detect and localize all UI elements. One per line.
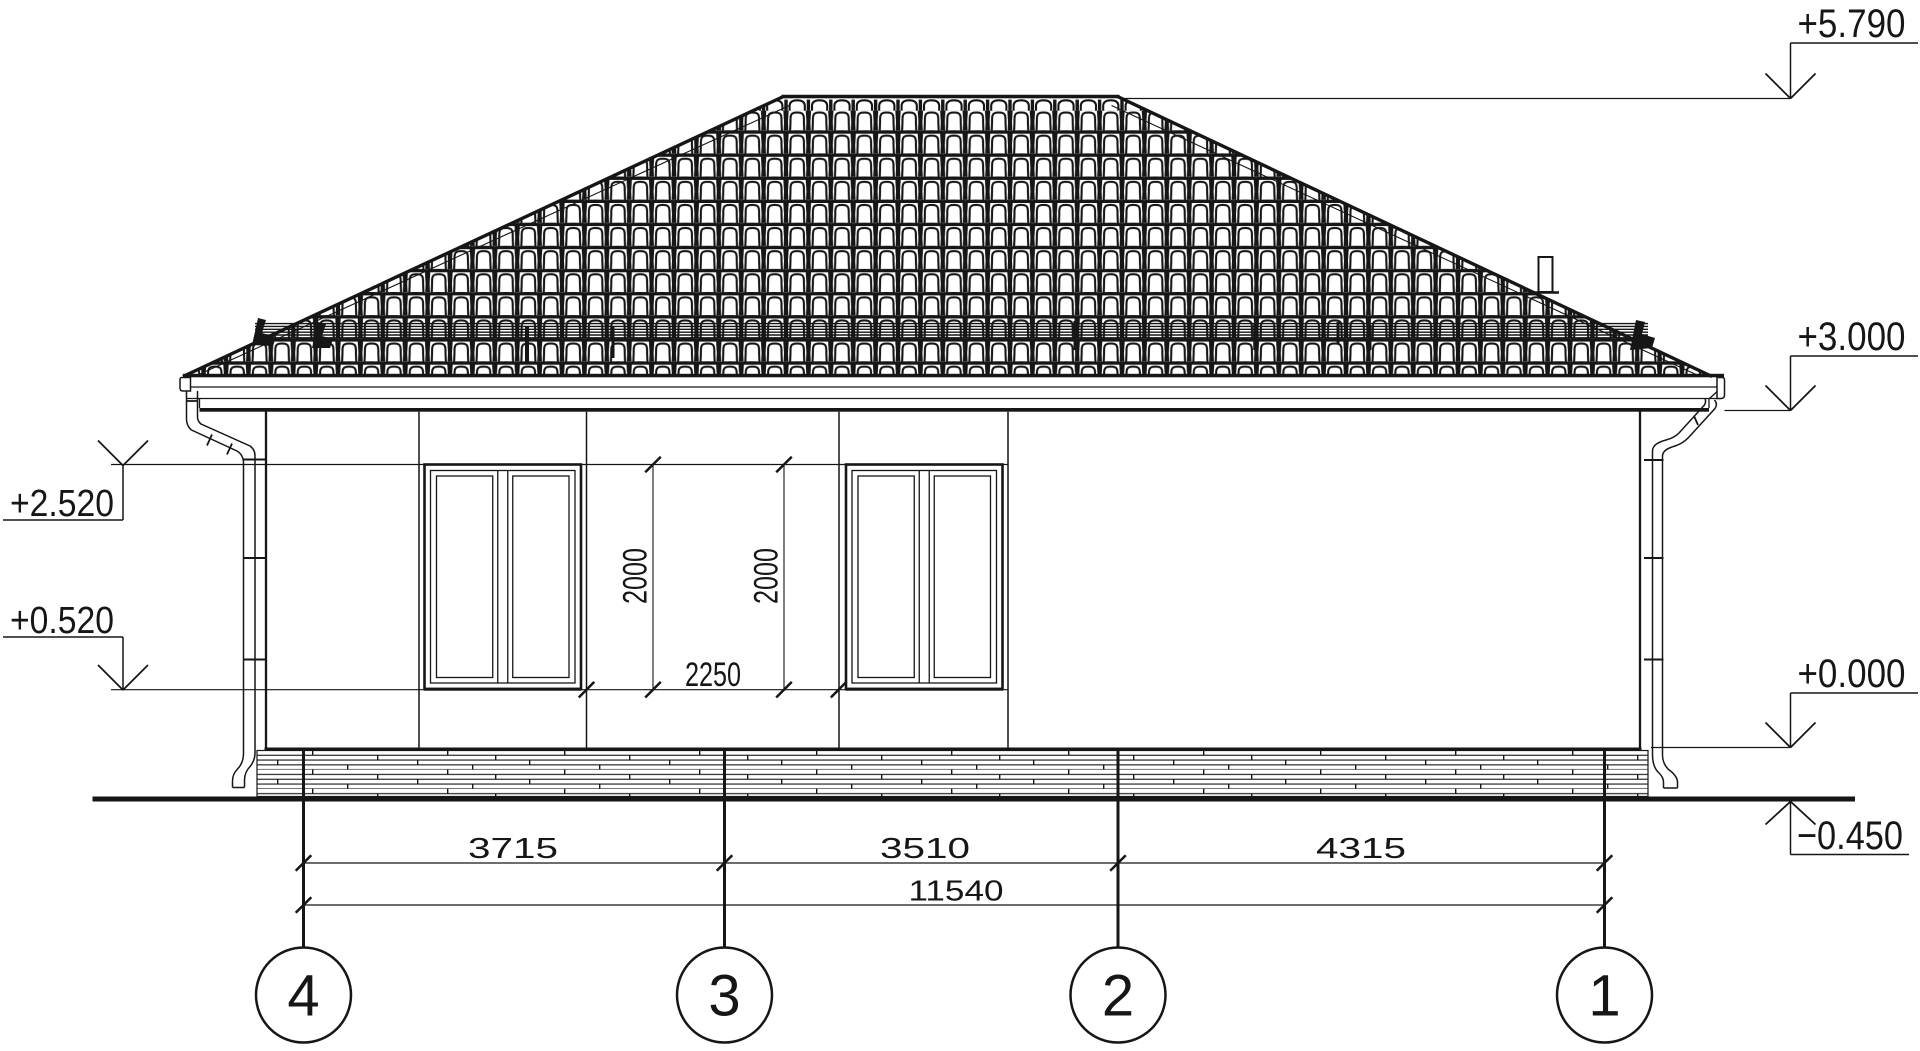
svg-text:3715: 3715	[468, 833, 558, 865]
svg-text:4315: 4315	[1316, 833, 1406, 865]
svg-text:+5.790: +5.790	[1798, 2, 1906, 46]
svg-text:+2.520: +2.520	[10, 483, 114, 525]
svg-text:4: 4	[287, 964, 319, 1029]
svg-text:11540: 11540	[909, 876, 1004, 908]
svg-text:2000: 2000	[617, 548, 655, 604]
svg-text:2250: 2250	[685, 656, 741, 694]
svg-text:3: 3	[708, 964, 740, 1029]
svg-text:2000: 2000	[748, 548, 786, 604]
svg-text:2: 2	[1102, 964, 1134, 1029]
svg-text:−0.450: −0.450	[1797, 814, 1903, 858]
svg-text:+3.000: +3.000	[1798, 315, 1906, 359]
svg-text:3510: 3510	[880, 833, 970, 865]
svg-text:+0.520: +0.520	[10, 600, 114, 642]
svg-text:1: 1	[1588, 964, 1620, 1029]
svg-text:+0.000: +0.000	[1798, 652, 1906, 696]
